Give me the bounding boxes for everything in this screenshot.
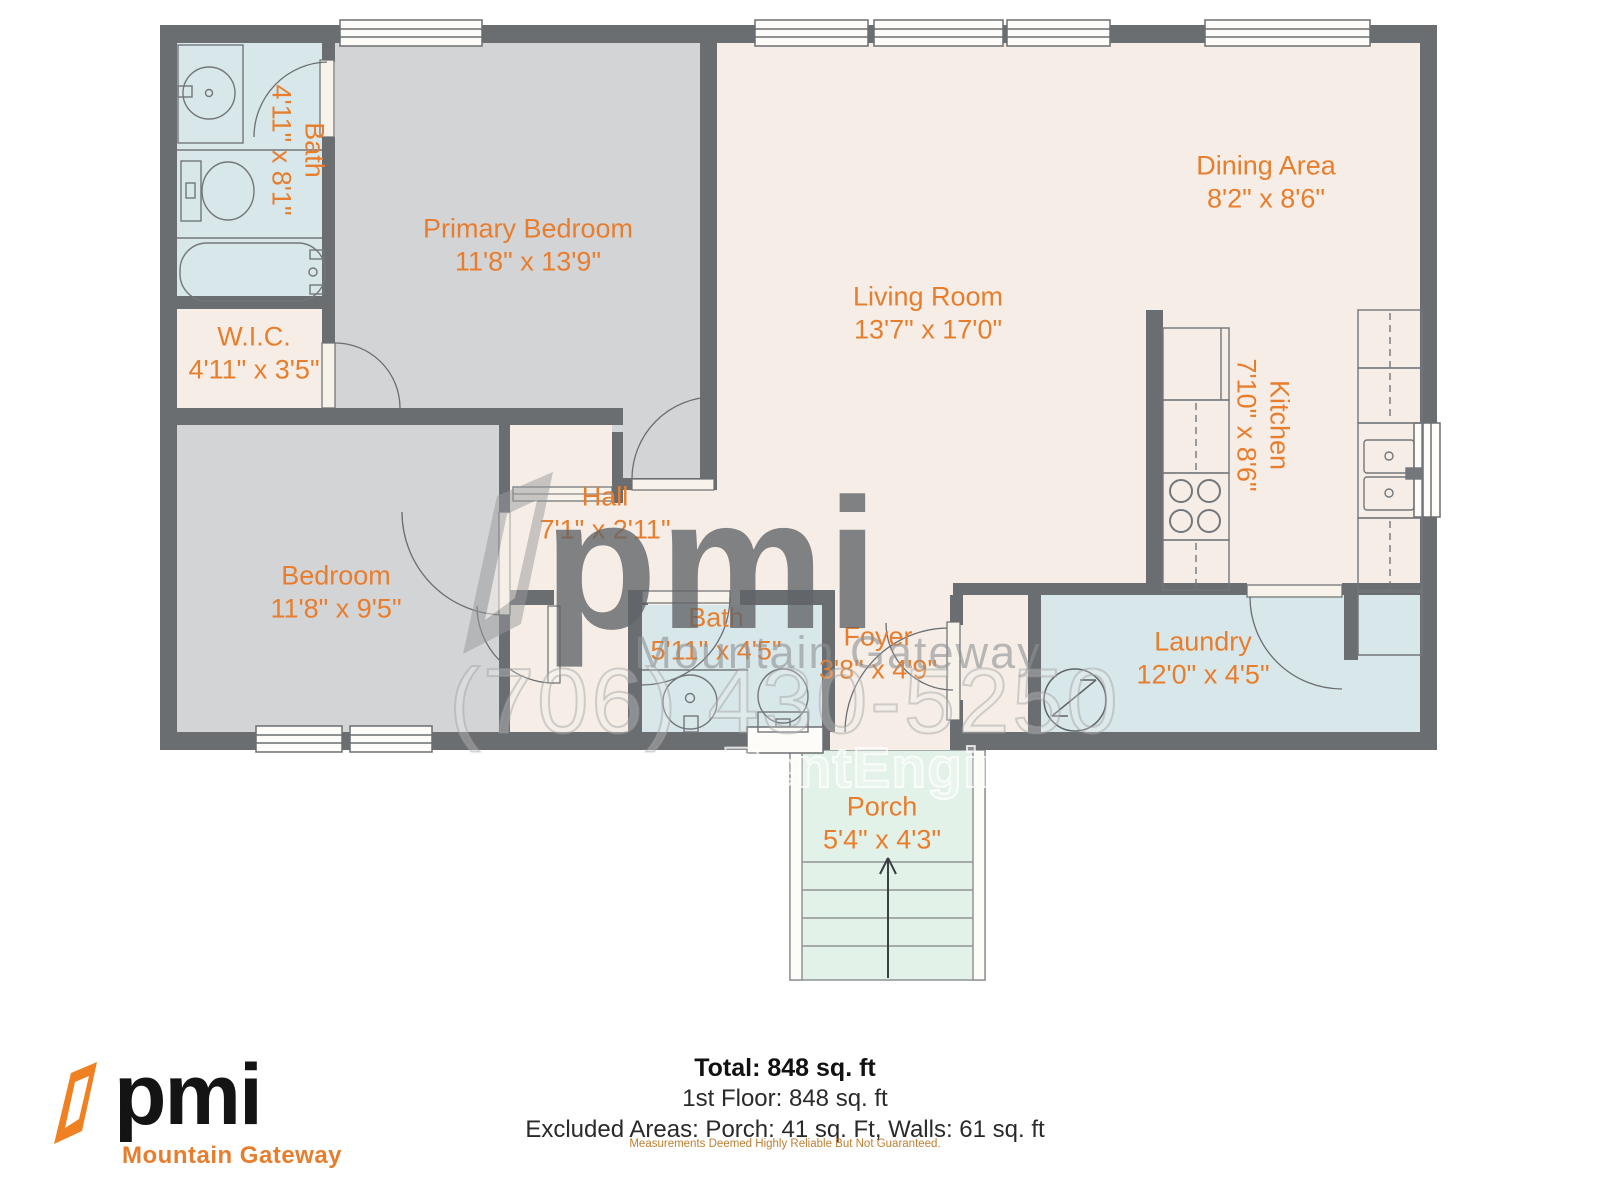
room-label-wic: W.I.C. 4'11" x 3'5" bbox=[188, 321, 319, 388]
room-label-living-room: Living Room 13'7" x 17'0" bbox=[853, 281, 1003, 348]
window-primary-bedroom bbox=[340, 20, 482, 46]
room-dims: 4'11" x 8'1" bbox=[264, 84, 297, 215]
disclaimer-text: Measurements Deemed Highly Reliable But … bbox=[629, 1138, 940, 1150]
pmi-flag-icon bbox=[52, 1058, 114, 1146]
wall-bath1-right-a bbox=[322, 43, 335, 62]
wall-laundry-top-a bbox=[1028, 583, 1247, 595]
area-summary: Total: 848 sq. ft 1st Floor: 848 sq. ft … bbox=[525, 1052, 1044, 1145]
wall-exterior-left bbox=[160, 25, 177, 750]
pmi-logo: pmi Mountain Gateway bbox=[52, 1050, 372, 1160]
room-label-dining-area: Dining Area 8'2" x 8'6" bbox=[1196, 150, 1336, 217]
room-label-laundry: Laundry 12'0" x 4'5" bbox=[1136, 626, 1269, 693]
room-name: Bedroom bbox=[270, 560, 401, 593]
wall-bedroom-top bbox=[160, 408, 623, 425]
room-label-bedroom: Bedroom 11'8" x 9'5" bbox=[270, 560, 401, 627]
wall-bath1-wic bbox=[160, 296, 322, 309]
pmi-logo-subtext: Mountain Gateway bbox=[122, 1142, 342, 1170]
window-living-triple bbox=[755, 20, 1110, 46]
room-name: Dining Area bbox=[1196, 150, 1336, 183]
room-name: Living Room bbox=[853, 281, 1003, 314]
wall-kitchen-peninsula bbox=[1146, 310, 1163, 590]
faucet-icon bbox=[1406, 468, 1422, 479]
wall-foyer-top bbox=[953, 583, 1037, 595]
door-leaf-wic bbox=[322, 343, 335, 408]
room-label-primary-bedroom: Primary Bedroom 11'8" x 13'9" bbox=[423, 213, 633, 280]
room-label-bath-1: Bath 4'11" x 8'1" bbox=[264, 84, 331, 215]
room-name: Kitchen bbox=[1262, 358, 1295, 491]
room-name: Bath bbox=[297, 84, 330, 215]
door-leaf-laundry bbox=[1247, 585, 1342, 597]
room-dims: 4'11" x 3'5" bbox=[188, 354, 319, 387]
room-dims: 11'8" x 13'9" bbox=[423, 246, 633, 279]
room-name: Primary Bedroom bbox=[423, 213, 633, 246]
pmi-logo-text: pmi bbox=[114, 1046, 261, 1145]
wall-laundry-shelf-stub bbox=[1344, 592, 1358, 660]
wall-foyer-closet-a bbox=[950, 595, 963, 625]
total-area: Total: 848 sq. ft bbox=[525, 1052, 1044, 1084]
room-dims: 11'8" x 9'5" bbox=[270, 593, 401, 626]
room-label-kitchen: Kitchen 7'10" x 8'6" bbox=[1229, 358, 1296, 491]
room-dims: 7'10" x 8'6" bbox=[1229, 358, 1262, 491]
first-floor-area: 1st Floor: 848 sq. ft bbox=[525, 1084, 1044, 1115]
window-dining bbox=[1205, 20, 1370, 46]
room-dims: 13'7" x 17'0" bbox=[853, 314, 1003, 347]
room-name: Laundry bbox=[1136, 626, 1269, 659]
watermark-engine: RentEngine bbox=[722, 735, 1049, 801]
room-dims: 8'2" x 8'6" bbox=[1196, 183, 1336, 216]
room-dims: 12'0" x 4'5" bbox=[1136, 659, 1269, 692]
wall-primary-living bbox=[700, 43, 717, 478]
room-name: W.I.C. bbox=[188, 321, 319, 354]
room-dims: 5'4" x 4'3" bbox=[823, 824, 941, 857]
